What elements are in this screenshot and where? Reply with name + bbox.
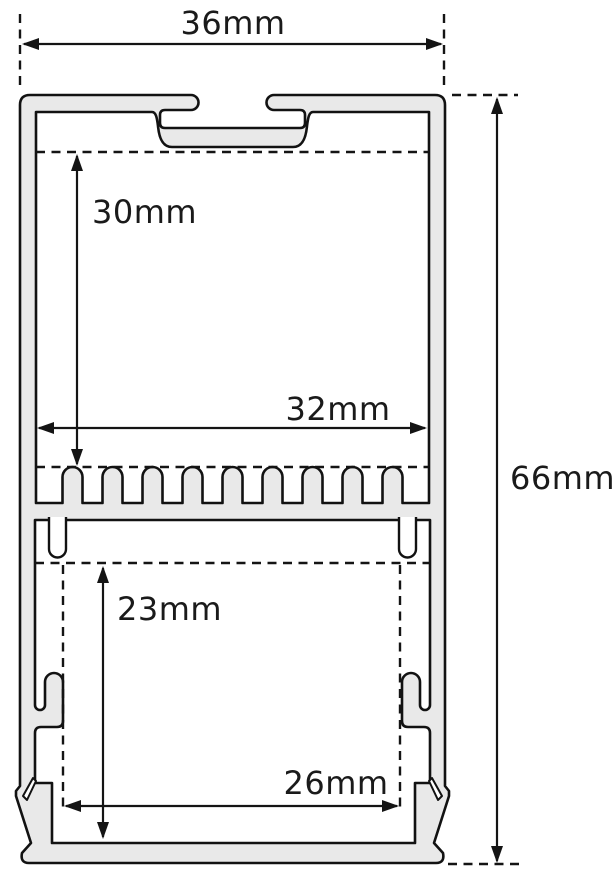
arrowhead-up	[71, 154, 83, 171]
aluminum-profile-cross-section	[16, 95, 449, 863]
profile-dimension-diagram: 36mm 66mm 30mm 32mm 23mm 26mm	[0, 0, 614, 883]
arrowhead-left	[64, 800, 81, 812]
screw-channel-right	[399, 517, 416, 558]
drawing-canvas: 36mm 66mm 30mm 32mm 23mm 26mm	[0, 0, 614, 883]
dim-label-outer-width: 36mm	[180, 4, 285, 42]
dim-label-lower-cavity-height: 23mm	[117, 590, 222, 628]
dim-label-upper-cavity-height: 30mm	[92, 193, 197, 231]
arrowhead-right	[410, 422, 427, 434]
arrowhead-down	[71, 449, 83, 466]
dimension-32mm: 32mm	[37, 390, 427, 434]
dim-label-upper-cavity-width: 32mm	[285, 390, 390, 428]
arrowhead-up	[491, 97, 503, 114]
dim-label-outer-height: 66mm	[510, 459, 614, 497]
dimension-23mm: 23mm	[97, 566, 222, 839]
arrowhead-left	[22, 38, 39, 50]
profile-body-shape	[16, 95, 449, 863]
dimension-30mm: 30mm	[71, 154, 197, 466]
arrowhead-left	[37, 422, 54, 434]
arrowhead-right	[426, 38, 443, 50]
arrowhead-down	[97, 822, 109, 839]
dimension-66mm: 66mm	[491, 97, 614, 863]
dim-label-lower-cavity-width: 26mm	[283, 764, 388, 802]
screw-channel-left	[49, 517, 66, 558]
dimension-36mm: 36mm	[22, 4, 443, 50]
arrowhead-down	[491, 846, 503, 863]
dimension-26mm: 26mm	[64, 764, 399, 812]
arrowhead-up	[97, 566, 109, 583]
